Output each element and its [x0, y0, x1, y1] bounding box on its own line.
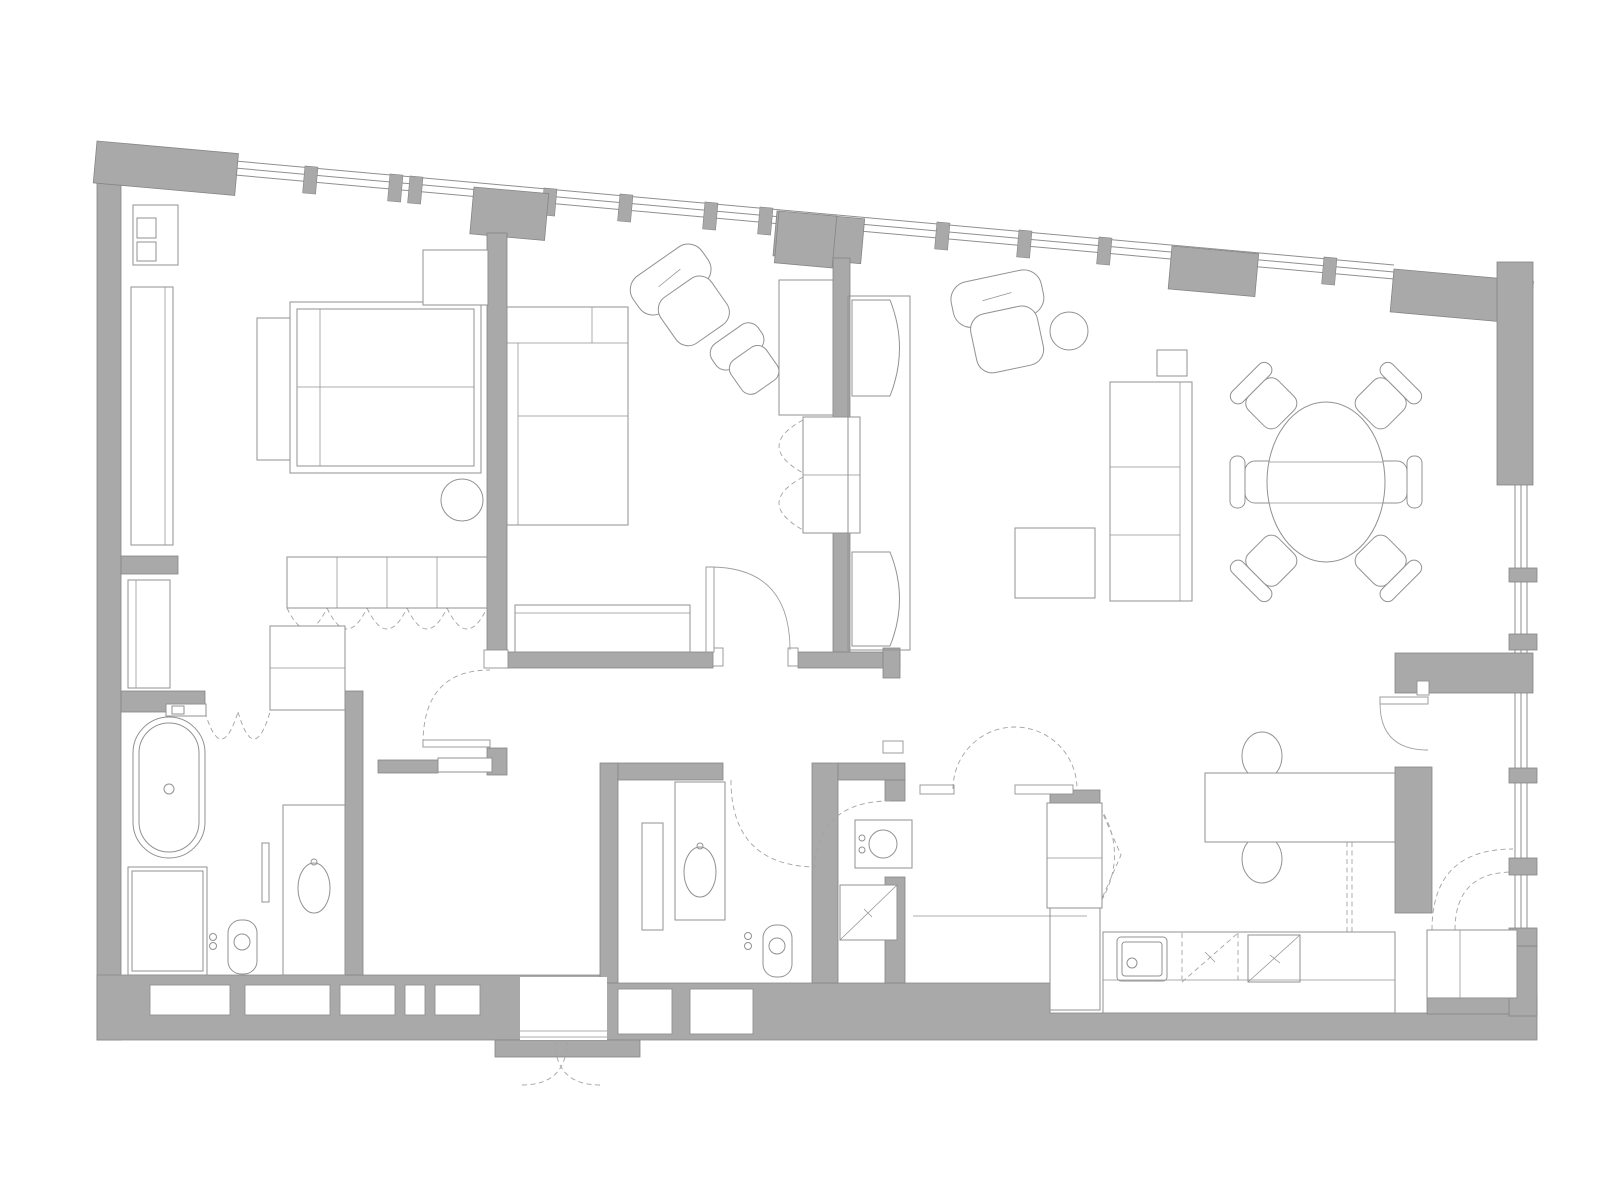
- toilet-icon: [228, 920, 257, 974]
- right-wall-upper: [1497, 262, 1533, 485]
- oval-dining-table: [1267, 402, 1385, 562]
- round-side-table-icon: [1050, 312, 1088, 350]
- fridge-folding-door: [1100, 807, 1121, 903]
- bed: [290, 302, 481, 473]
- floor-plan-drawing: [0, 0, 1600, 1200]
- tall-fridge-cabinet: [1047, 803, 1102, 908]
- entry-door: [520, 977, 607, 1085]
- bath2-bath3-wall: [812, 763, 838, 983]
- flush-dots-icon: [210, 934, 217, 941]
- sitting-room: [507, 237, 860, 652]
- armchair-icon: [948, 267, 1058, 379]
- bench: [515, 605, 690, 652]
- bedroom-sitting-wall: [487, 233, 507, 652]
- hall-door-swing: [423, 670, 490, 744]
- coffee-table: [1015, 528, 1095, 598]
- tall-cabinet: [642, 823, 663, 930]
- loggia-door-leaf: [1380, 697, 1428, 704]
- hall-door-leaf: [423, 740, 490, 747]
- shower-enclosure: [128, 867, 207, 975]
- bathroom-2: [642, 782, 792, 977]
- loggia-door-swing: [1380, 703, 1428, 750]
- loggia: [1427, 930, 1517, 998]
- bath1-bifold-door: [205, 712, 238, 739]
- kitchen-swing-door: [953, 727, 1077, 789]
- bath2-west-wall: [600, 763, 618, 983]
- bow-front-cabinet-upper: [852, 300, 900, 396]
- bath2-door-swing: [731, 780, 818, 867]
- loggia-dashed-swing: [1432, 849, 1513, 930]
- nightstand-bench: [423, 250, 488, 305]
- base-cabinet: [1050, 908, 1100, 1010]
- flush-dots-icon: [745, 933, 752, 940]
- bedroom: [128, 205, 488, 688]
- low-cabinet-icon: [128, 580, 170, 688]
- console-shelf: [438, 758, 492, 772]
- floor-plan-page: [0, 0, 1600, 1200]
- washbasin-shelf: [855, 820, 912, 868]
- kitchen: [913, 732, 1395, 1013]
- left-wall: [97, 148, 121, 1040]
- vanity-with-sink: [675, 782, 725, 920]
- bedside-stool-icon: [441, 479, 483, 521]
- bath1-bifold-door: [238, 712, 270, 739]
- vanity-with-sink: [283, 805, 345, 975]
- living-loggia-wall: [1395, 653, 1533, 693]
- top-wall-pier: [1168, 246, 1258, 297]
- toilet-icon: [763, 925, 792, 977]
- square-side-table-icon: [1157, 350, 1187, 376]
- appliance-cabinet: [1427, 930, 1517, 998]
- entry-porch-wall: [495, 1040, 640, 1057]
- sitting-room-door-swing: [710, 567, 790, 650]
- headboard: [257, 318, 290, 460]
- tall-cabinet-icon: [131, 287, 173, 545]
- mirror-strip: [262, 843, 269, 902]
- bath1-east-wall: [345, 691, 363, 975]
- armchair-small-icon: [706, 318, 789, 403]
- kitchen-loggia-wall: [1395, 767, 1432, 913]
- counter: [1103, 932, 1395, 1013]
- work-table: [1205, 773, 1395, 842]
- loggia-dashed-swing: [1455, 872, 1513, 930]
- sitting-room-door-leaf: [706, 567, 714, 652]
- living-room: [848, 267, 1192, 650]
- dining-area: [1227, 359, 1424, 604]
- bow-front-cabinet-lower: [852, 552, 900, 646]
- tv-cabinet: [779, 280, 833, 415]
- top-wall-pier: [470, 187, 549, 240]
- freestanding-bathtub: [133, 717, 205, 858]
